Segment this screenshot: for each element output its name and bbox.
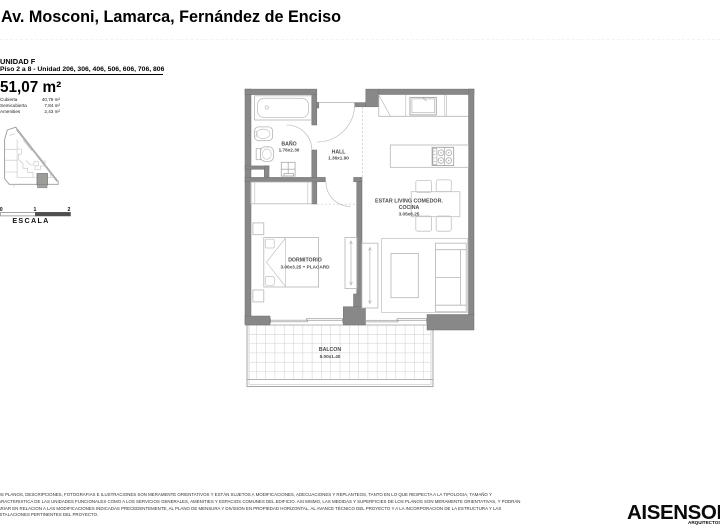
svg-text:COCINA: COCINA (399, 205, 420, 211)
svg-text:1.76x2.30: 1.76x2.30 (279, 147, 300, 152)
svg-text:0: 0 (0, 207, 3, 213)
svg-text:3.00x3.25 + PLACARD: 3.00x3.25 + PLACARD (280, 264, 330, 269)
svg-text:2: 2 (68, 207, 71, 213)
svg-text:5.00x1.40: 5.00x1.40 (320, 354, 341, 359)
svg-text:ESTAR LIVING COMEDOR.: ESTAR LIVING COMEDOR. (375, 199, 443, 205)
svg-text:BAÑO: BAÑO (281, 140, 296, 147)
svg-text:ESCALA: ESCALA (12, 216, 49, 225)
svg-text:1.36x1.90: 1.36x1.90 (328, 156, 349, 161)
svg-text:1: 1 (34, 207, 37, 213)
svg-text:BALCON: BALCON (319, 347, 341, 353)
svg-text:DORMITORIO: DORMITORIO (288, 257, 322, 263)
svg-text:3.05x6.25: 3.05x6.25 (399, 212, 420, 217)
